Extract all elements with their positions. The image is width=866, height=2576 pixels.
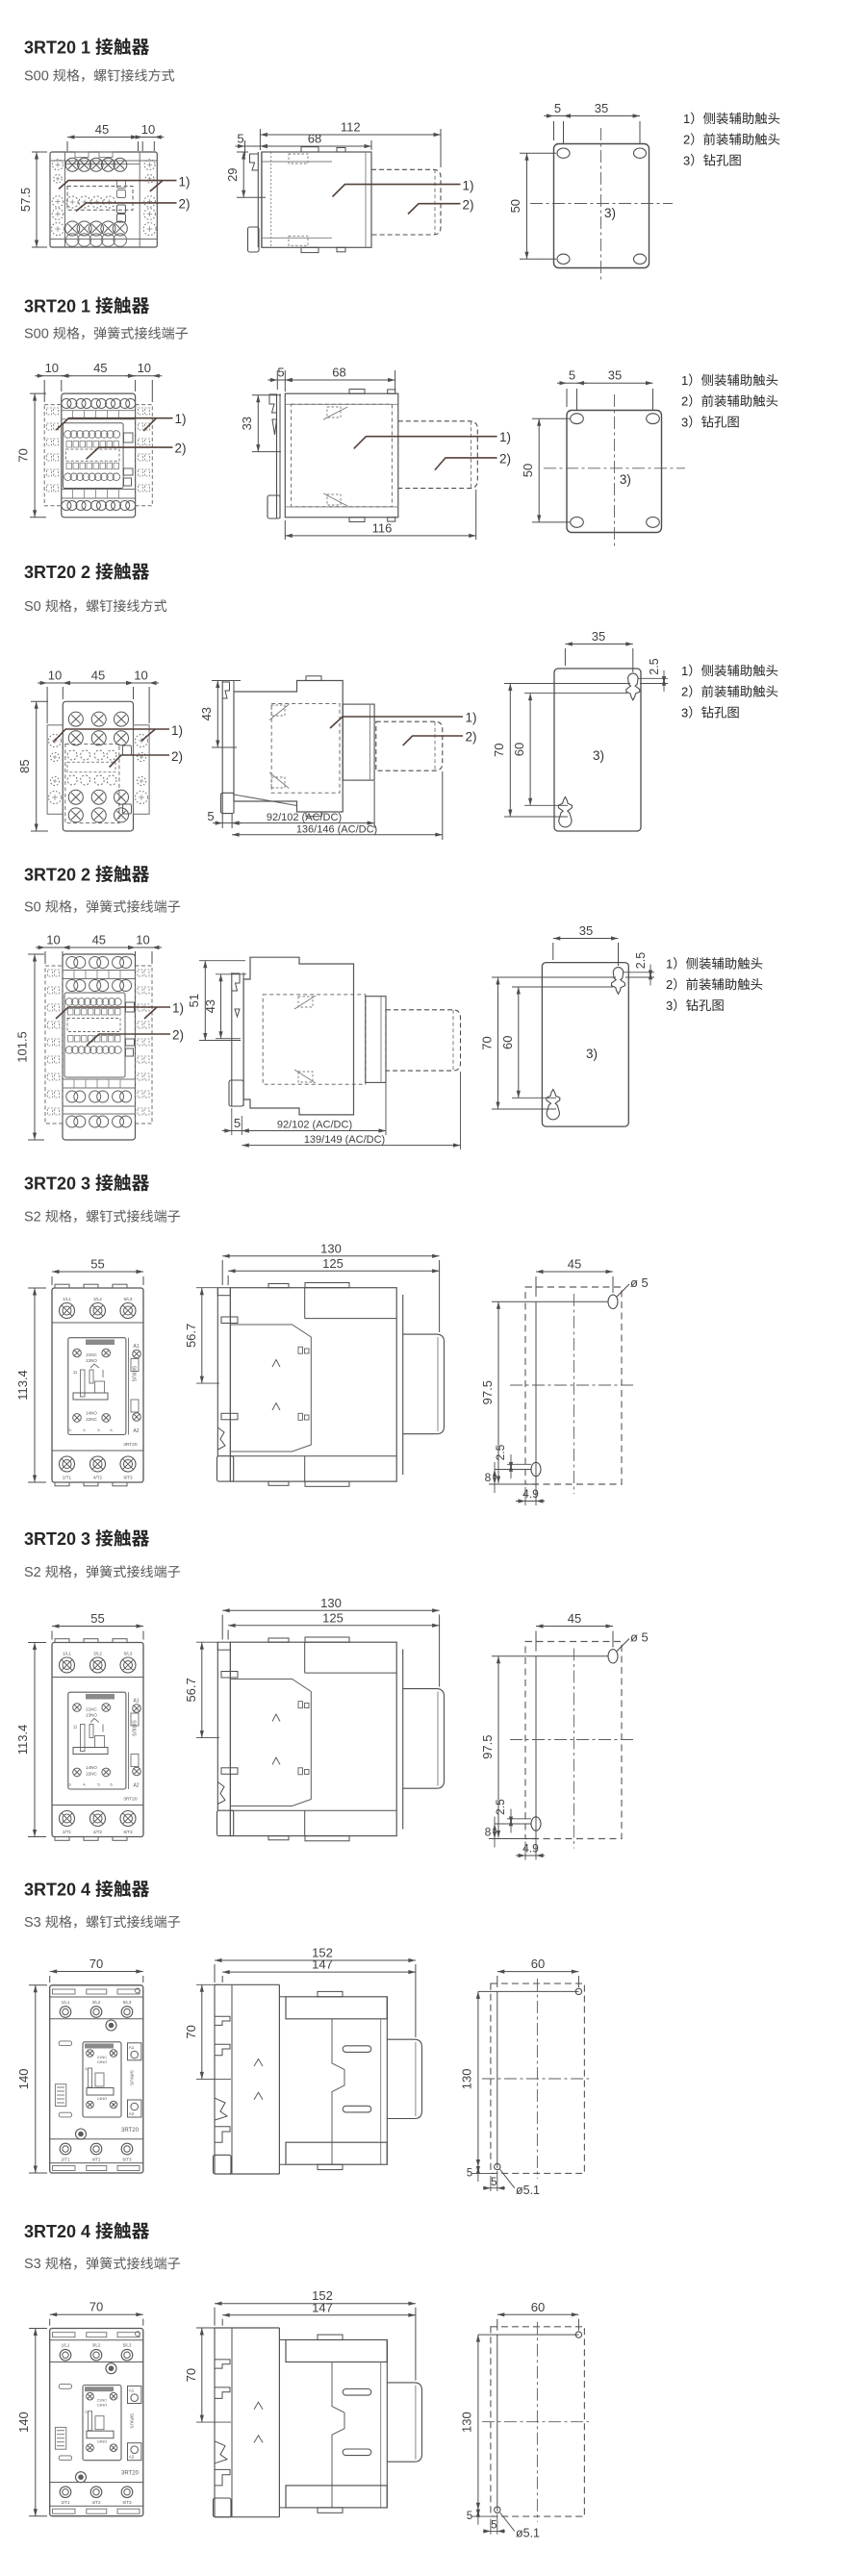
svg-text:2.5: 2.5: [494, 1799, 507, 1815]
svg-text:125: 125: [322, 1610, 344, 1625]
svg-text:101.5: 101.5: [15, 1031, 30, 1063]
svg-text:S3: S3: [24, 1915, 41, 1931]
svg-text:45: 45: [568, 1257, 581, 1272]
svg-text:70: 70: [184, 2025, 198, 2038]
svg-text:5: 5: [491, 2520, 497, 2532]
svg-text:3: 3: [683, 153, 690, 167]
svg-text:5: 5: [491, 2177, 497, 2188]
svg-text:13NO: 13NO: [86, 1713, 97, 1718]
svg-text:3/L2: 3/L2: [93, 1297, 102, 1301]
svg-text:13NO: 13NO: [86, 1358, 97, 1363]
svg-text:6/T3: 6/T3: [122, 2500, 132, 2505]
svg-text:116: 116: [372, 520, 393, 535]
svg-text:3): 3): [586, 1047, 598, 1061]
svg-text:85: 85: [17, 759, 32, 772]
svg-text:5/L3: 5/L3: [123, 2000, 132, 2005]
svg-text:3RT20: 3RT20: [123, 1442, 138, 1448]
svg-text:8: 8: [485, 1471, 492, 1484]
svg-text:55: 55: [90, 1611, 104, 1626]
svg-text:45: 45: [568, 1611, 581, 1626]
svg-text:11: 11: [73, 1370, 78, 1375]
svg-text:130: 130: [460, 2412, 474, 2433]
svg-text:68: 68: [332, 366, 345, 380]
svg-text:S0: S0: [24, 599, 41, 615]
svg-text:1/L1: 1/L1: [63, 1297, 71, 1301]
svg-text:21NC: 21NC: [86, 1352, 97, 1357]
svg-text:2.5: 2.5: [634, 952, 648, 969]
svg-text:3/L2: 3/L2: [92, 2343, 101, 2348]
svg-text:3: 3: [681, 705, 688, 720]
svg-text:112: 112: [341, 120, 361, 135]
svg-text:4.9: 4.9: [522, 1487, 539, 1501]
svg-text:3RT20 1: 3RT20 1: [24, 38, 90, 58]
svg-text:1/L1: 1/L1: [62, 2343, 70, 2348]
svg-text:10: 10: [136, 933, 149, 947]
svg-text:5: 5: [569, 368, 575, 383]
svg-text:A1: A1: [133, 1344, 139, 1350]
svg-text:5/L3: 5/L3: [124, 1297, 133, 1301]
svg-text:1): 1): [175, 412, 187, 426]
svg-text:A1: A1: [129, 2045, 135, 2050]
svg-text:2): 2): [499, 451, 511, 466]
svg-text:5: 5: [467, 2168, 472, 2180]
svg-text:125: 125: [322, 1256, 344, 1271]
svg-text:3.: 3.: [68, 1782, 71, 1787]
svg-text:1: 1: [681, 664, 688, 678]
svg-text:5: 5: [554, 101, 561, 115]
svg-text:3/L2: 3/L2: [92, 2000, 101, 2005]
svg-text:5/L3: 5/L3: [123, 2343, 132, 2348]
svg-text:5/L3: 5/L3: [124, 1652, 133, 1656]
svg-text:10: 10: [134, 669, 147, 683]
svg-text:10: 10: [141, 122, 155, 137]
svg-text:147: 147: [312, 2300, 333, 2314]
svg-text:2): 2): [175, 442, 187, 456]
svg-text:57.5: 57.5: [18, 188, 33, 212]
svg-text:3): 3): [604, 206, 616, 220]
svg-text:60: 60: [512, 743, 526, 756]
svg-text:13NO: 13NO: [97, 2059, 107, 2064]
svg-text:60: 60: [531, 2300, 545, 2314]
svg-text:2: 2: [666, 977, 673, 992]
svg-text:5: 5: [467, 2511, 472, 2522]
svg-text:4.: 4.: [83, 1427, 86, 1432]
svg-text:5: 5: [207, 809, 214, 823]
svg-text:ø5.1: ø5.1: [516, 2527, 540, 2540]
svg-text:4/T2: 4/T2: [91, 2500, 101, 2505]
svg-text:A1: A1: [133, 1699, 139, 1705]
svg-text:1): 1): [172, 1001, 184, 1016]
svg-text:A2: A2: [133, 1428, 139, 1434]
svg-text:1: 1: [683, 112, 690, 126]
svg-text:3: 3: [681, 415, 688, 429]
svg-text:10: 10: [46, 933, 60, 947]
svg-text:33: 33: [240, 417, 254, 430]
svg-text:2/T1: 2/T1: [61, 2500, 70, 2505]
svg-text:S3: S3: [24, 2257, 41, 2272]
svg-text:3RT20 2: 3RT20 2: [24, 866, 90, 885]
svg-text:14NO: 14NO: [86, 1765, 97, 1770]
svg-text:SIRIUS: SIRIUS: [129, 2070, 135, 2085]
svg-text:60: 60: [500, 1035, 515, 1048]
svg-text:A2: A2: [129, 2111, 135, 2116]
svg-text:1): 1): [466, 711, 477, 725]
svg-text:21NC: 21NC: [86, 1707, 97, 1712]
svg-text:A1: A1: [129, 2388, 135, 2393]
svg-text:3RT20 4: 3RT20 4: [24, 1881, 90, 1900]
svg-text:1): 1): [179, 175, 191, 189]
svg-text:10: 10: [48, 669, 62, 683]
svg-text:2.5: 2.5: [494, 1444, 507, 1460]
svg-text:51: 51: [187, 994, 201, 1007]
svg-text:2/T1: 2/T1: [63, 1476, 72, 1480]
svg-text:3: 3: [666, 998, 673, 1013]
svg-text:2: 2: [681, 685, 688, 699]
svg-text:3RT20 3: 3RT20 3: [24, 1174, 90, 1194]
svg-text:56.7: 56.7: [184, 1678, 198, 1702]
svg-text:11: 11: [85, 2066, 89, 2071]
svg-text:1/L1: 1/L1: [62, 2000, 70, 2005]
svg-text:3RT20 2: 3RT20 2: [24, 563, 90, 582]
svg-text:3RT20 4: 3RT20 4: [24, 2222, 90, 2241]
svg-text:43: 43: [199, 707, 214, 720]
svg-text:35: 35: [595, 101, 608, 115]
svg-text:14NO: 14NO: [97, 2439, 107, 2444]
svg-text:35: 35: [579, 923, 593, 938]
svg-text:130: 130: [320, 1241, 342, 1255]
svg-text:5.: 5.: [97, 1782, 100, 1787]
svg-text:147: 147: [312, 1957, 333, 1972]
svg-text:A2: A2: [129, 2455, 135, 2460]
svg-text:A2: A2: [133, 1783, 139, 1789]
svg-text:2/T1: 2/T1: [61, 2158, 70, 2162]
svg-text:130: 130: [460, 2069, 474, 2090]
svg-text:70: 70: [480, 1036, 495, 1049]
svg-text:2.5: 2.5: [648, 658, 661, 674]
svg-text:4/T2: 4/T2: [91, 2158, 101, 2162]
svg-text:8: 8: [485, 1826, 492, 1839]
svg-text:136/146 (AC/DC): 136/146 (AC/DC): [296, 823, 377, 835]
svg-text:2: 2: [681, 394, 688, 409]
svg-text:43: 43: [203, 999, 217, 1013]
svg-text:6.: 6.: [110, 1782, 113, 1787]
svg-text:56.7: 56.7: [184, 1324, 198, 1348]
svg-text:10: 10: [45, 361, 59, 375]
svg-text:3RT20: 3RT20: [123, 1797, 138, 1803]
svg-text:45: 45: [95, 122, 109, 137]
svg-text:6.: 6.: [110, 1427, 113, 1432]
svg-text:SIRIUS: SIRIUS: [129, 2413, 135, 2429]
svg-text:2): 2): [171, 749, 183, 764]
svg-text:5: 5: [277, 366, 284, 380]
svg-text:45: 45: [93, 361, 107, 375]
svg-text:1): 1): [171, 723, 183, 738]
svg-text:4.9: 4.9: [522, 1842, 539, 1856]
svg-text:2): 2): [172, 1028, 184, 1043]
svg-text:113.4: 113.4: [15, 1370, 30, 1401]
svg-text:22NC: 22NC: [86, 1772, 97, 1777]
svg-text:3/L2: 3/L2: [93, 1652, 102, 1656]
svg-text:14NO: 14NO: [86, 1411, 97, 1416]
svg-text:1): 1): [499, 430, 511, 444]
svg-text:140: 140: [16, 2412, 31, 2433]
svg-text:2): 2): [463, 198, 474, 213]
svg-text:6/T3: 6/T3: [123, 1830, 133, 1834]
svg-text:S2: S2: [24, 1210, 41, 1225]
svg-text:70: 70: [16, 448, 31, 462]
svg-text:3RT20: 3RT20: [121, 2471, 140, 2477]
svg-text:S00: S00: [24, 69, 49, 85]
svg-text:50: 50: [508, 199, 522, 213]
svg-text:14NO: 14NO: [97, 2096, 107, 2101]
svg-text:70: 70: [492, 744, 506, 757]
svg-text:6/T3: 6/T3: [122, 2158, 132, 2162]
svg-text:2): 2): [179, 197, 191, 212]
svg-text:13NO: 13NO: [97, 2403, 107, 2408]
svg-text:5: 5: [234, 1116, 241, 1130]
svg-text:11: 11: [73, 1725, 78, 1730]
svg-text:ø5.1: ø5.1: [516, 2184, 540, 2197]
svg-text:5.: 5.: [97, 1427, 100, 1432]
svg-text:S00: S00: [24, 327, 49, 342]
svg-text:3RT20: 3RT20: [121, 2128, 140, 2134]
svg-text:1: 1: [681, 373, 688, 388]
svg-text:3.: 3.: [68, 1427, 71, 1432]
svg-text:S2: S2: [24, 1565, 41, 1580]
svg-text:S0: S0: [24, 900, 41, 916]
svg-text:92/102 (AC/DC): 92/102 (AC/DC): [267, 812, 342, 823]
svg-text:5: 5: [237, 132, 243, 146]
svg-text:130: 130: [320, 1596, 342, 1610]
svg-text:45: 45: [91, 669, 105, 683]
svg-text:1: 1: [666, 957, 673, 972]
svg-text:68: 68: [308, 132, 321, 146]
svg-text:1): 1): [463, 179, 474, 193]
svg-text:10: 10: [138, 361, 151, 375]
svg-text:70: 70: [89, 1957, 103, 1971]
svg-text:2/T1: 2/T1: [63, 1830, 72, 1834]
svg-text:97.5: 97.5: [480, 1380, 495, 1404]
svg-text:140: 140: [16, 2069, 31, 2090]
svg-text:45: 45: [92, 933, 106, 947]
svg-text:3RT20 3: 3RT20 3: [24, 1529, 90, 1549]
svg-text:4/T2: 4/T2: [93, 1830, 103, 1834]
svg-text:ø 5: ø 5: [630, 1630, 649, 1645]
svg-text:4.: 4.: [83, 1782, 86, 1787]
svg-text:35: 35: [608, 368, 622, 383]
svg-text:55: 55: [90, 1257, 104, 1272]
svg-text:35: 35: [592, 629, 605, 644]
svg-text:50: 50: [521, 464, 535, 477]
svg-text:92/102 (AC/DC): 92/102 (AC/DC): [277, 1120, 352, 1131]
svg-text:97.5: 97.5: [480, 1735, 495, 1759]
svg-text:6/T3: 6/T3: [123, 1476, 133, 1480]
svg-text:139/149 (AC/DC): 139/149 (AC/DC): [304, 1134, 385, 1146]
svg-text:11: 11: [85, 2410, 89, 2414]
svg-text:60: 60: [531, 1957, 545, 1971]
svg-text:22NC: 22NC: [86, 1417, 97, 1422]
svg-text:3): 3): [620, 472, 631, 487]
svg-text:4/T2: 4/T2: [93, 1476, 103, 1480]
svg-text:70: 70: [89, 2300, 103, 2314]
svg-text:2): 2): [466, 730, 477, 745]
svg-text:70: 70: [184, 2368, 198, 2382]
svg-text:113.4: 113.4: [15, 1725, 30, 1755]
svg-text:ø 5: ø 5: [630, 1275, 649, 1290]
svg-text:1/L1: 1/L1: [63, 1652, 71, 1656]
svg-text:29: 29: [225, 167, 240, 181]
svg-text:3): 3): [593, 748, 604, 763]
svg-text:2: 2: [683, 133, 690, 147]
svg-text:3RT20 1: 3RT20 1: [24, 297, 90, 316]
